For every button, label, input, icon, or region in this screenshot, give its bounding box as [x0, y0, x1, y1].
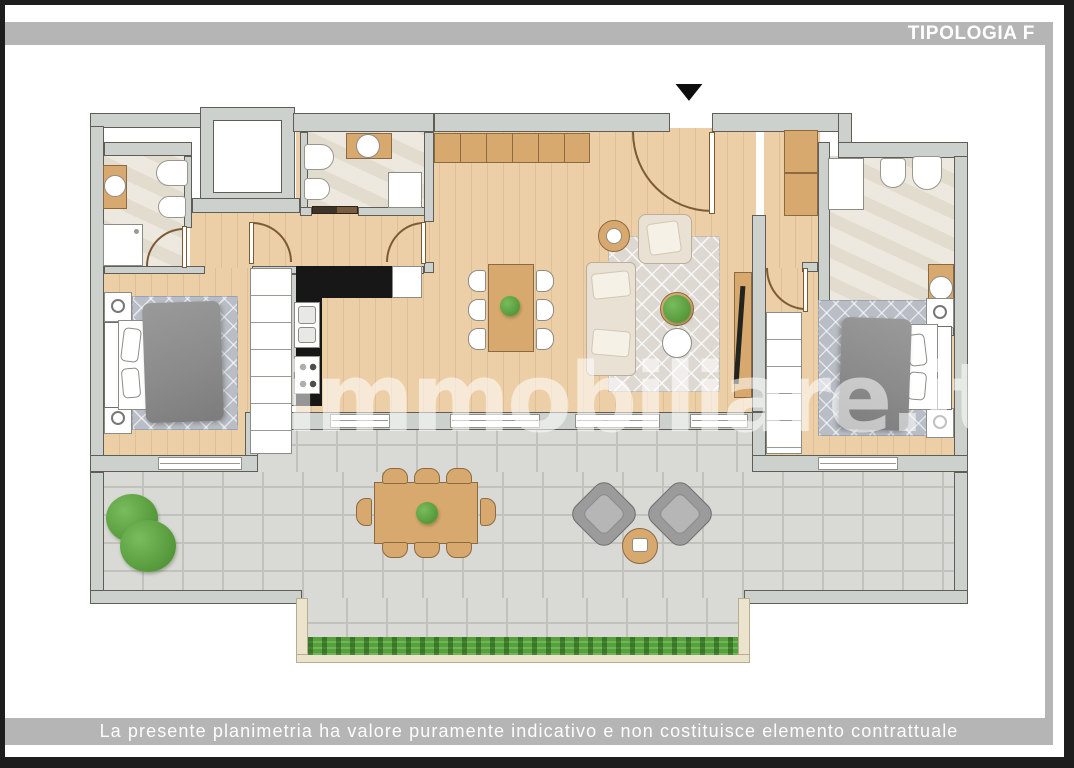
nightstand-lamp: [933, 415, 947, 429]
terrace-plant: [120, 520, 176, 572]
outdoor-chair: [414, 468, 440, 484]
door-leaf: [709, 132, 715, 214]
wall-segment: [104, 142, 192, 156]
dining-chair: [536, 328, 554, 350]
frame-border-top: [0, 0, 1074, 5]
terrace-floor: [104, 472, 954, 598]
lounge-cushion: [581, 491, 626, 536]
terrace-lower-edge: [296, 654, 750, 663]
wall-segment: [293, 113, 434, 132]
wall-segment: [358, 207, 434, 216]
bidet: [158, 196, 186, 218]
frame-border-left: [0, 0, 5, 768]
window: [818, 457, 898, 470]
wall-segment: [90, 113, 207, 128]
outdoor-chair: [446, 468, 472, 484]
door-leaf: [803, 268, 808, 312]
disclaimer-text: La presente planimetria ha valore purame…: [100, 721, 959, 741]
wardrobe: [766, 312, 802, 454]
nightstand-lamp: [111, 411, 125, 425]
armchair-cushion: [646, 220, 682, 256]
footer-bar: La presente planimetria ha valore purame…: [5, 718, 1053, 745]
window: [158, 457, 242, 470]
bed-blanket: [838, 317, 912, 431]
wall-segment: [712, 113, 840, 132]
sink-basin: [298, 327, 316, 343]
terrace-floor-upper: [258, 430, 752, 472]
toilet: [156, 160, 188, 186]
wall-segment: [434, 113, 670, 132]
side-bar-decoration: [1045, 22, 1053, 745]
terrace-parapet: [744, 590, 968, 604]
sideboard: [434, 133, 590, 163]
sofa-cushion: [591, 270, 632, 300]
door-leaf: [421, 222, 426, 264]
hedge-strip: [308, 637, 738, 655]
bidet: [304, 178, 330, 200]
window: [330, 414, 390, 428]
window: [575, 414, 660, 428]
bed-pillow: [121, 367, 142, 398]
nightstand-lamp: [111, 299, 125, 313]
shower: [828, 158, 864, 210]
dining-chair: [536, 270, 554, 292]
outdoor-chair: [382, 542, 408, 558]
terrace-parapet: [954, 472, 968, 604]
outdoor-chair: [382, 468, 408, 484]
bed-headboard: [936, 326, 952, 410]
bidet: [880, 158, 906, 188]
wall-segment: [838, 142, 968, 158]
frame-border-right: [1064, 0, 1074, 768]
door-leaf: [182, 226, 187, 268]
washbasin: [104, 175, 126, 197]
bed-blanket: [142, 301, 224, 424]
dining-chair: [468, 299, 486, 321]
wall-segment: [104, 266, 205, 274]
outdoor-chair: [356, 498, 372, 526]
wall-segment: [192, 198, 300, 213]
lounge-cushion: [657, 491, 702, 536]
wardrobe: [250, 268, 292, 454]
side-table-tray: [606, 228, 622, 244]
entry-wardrobe: [784, 130, 818, 216]
washbasin: [929, 276, 953, 300]
coffee-table-plant: [663, 295, 691, 323]
toilet: [304, 144, 334, 170]
wall-segment: [300, 207, 312, 216]
kitchen-counter: [296, 266, 392, 298]
dining-chair: [468, 328, 486, 350]
kitchen-counter-white: [392, 266, 422, 298]
shower: [388, 172, 422, 208]
door-leaf: [249, 222, 254, 264]
washbasin: [356, 134, 380, 158]
terrace-lower-edge: [738, 598, 750, 660]
wall-segment: [752, 215, 766, 412]
sliding-door: [312, 206, 358, 214]
outdoor-chair: [480, 498, 496, 526]
window: [450, 414, 540, 428]
tray-table: [662, 328, 692, 358]
dining-chair: [468, 270, 486, 292]
dining-chair: [536, 299, 554, 321]
wall-segment: [954, 156, 968, 472]
frame-border-bottom: [0, 757, 1074, 768]
outdoor-table-plant: [416, 502, 438, 524]
terrace-lower-edge: [296, 598, 308, 660]
sink-basin: [298, 306, 316, 324]
stairwell-void: [213, 120, 282, 193]
table-plant: [500, 296, 520, 316]
outdoor-chair: [446, 542, 472, 558]
page-title: TIPOLOGIA F: [908, 23, 1035, 44]
wall-segment: [424, 132, 434, 222]
terrace-parapet: [90, 590, 302, 604]
terrace-parapet: [90, 472, 104, 604]
nightstand-lamp: [933, 305, 947, 319]
outdoor-chair: [414, 542, 440, 558]
toilet: [912, 156, 942, 190]
header-bar: TIPOLOGIA F: [5, 22, 1053, 45]
shower-drain: [134, 229, 139, 234]
cooktop: [294, 356, 320, 394]
window: [690, 414, 748, 428]
sofa-cushion: [591, 328, 631, 357]
wall-segment: [90, 126, 104, 472]
terrace-side-table-tray: [632, 538, 648, 552]
entrance-arrow-icon: ▼: [655, 80, 723, 104]
